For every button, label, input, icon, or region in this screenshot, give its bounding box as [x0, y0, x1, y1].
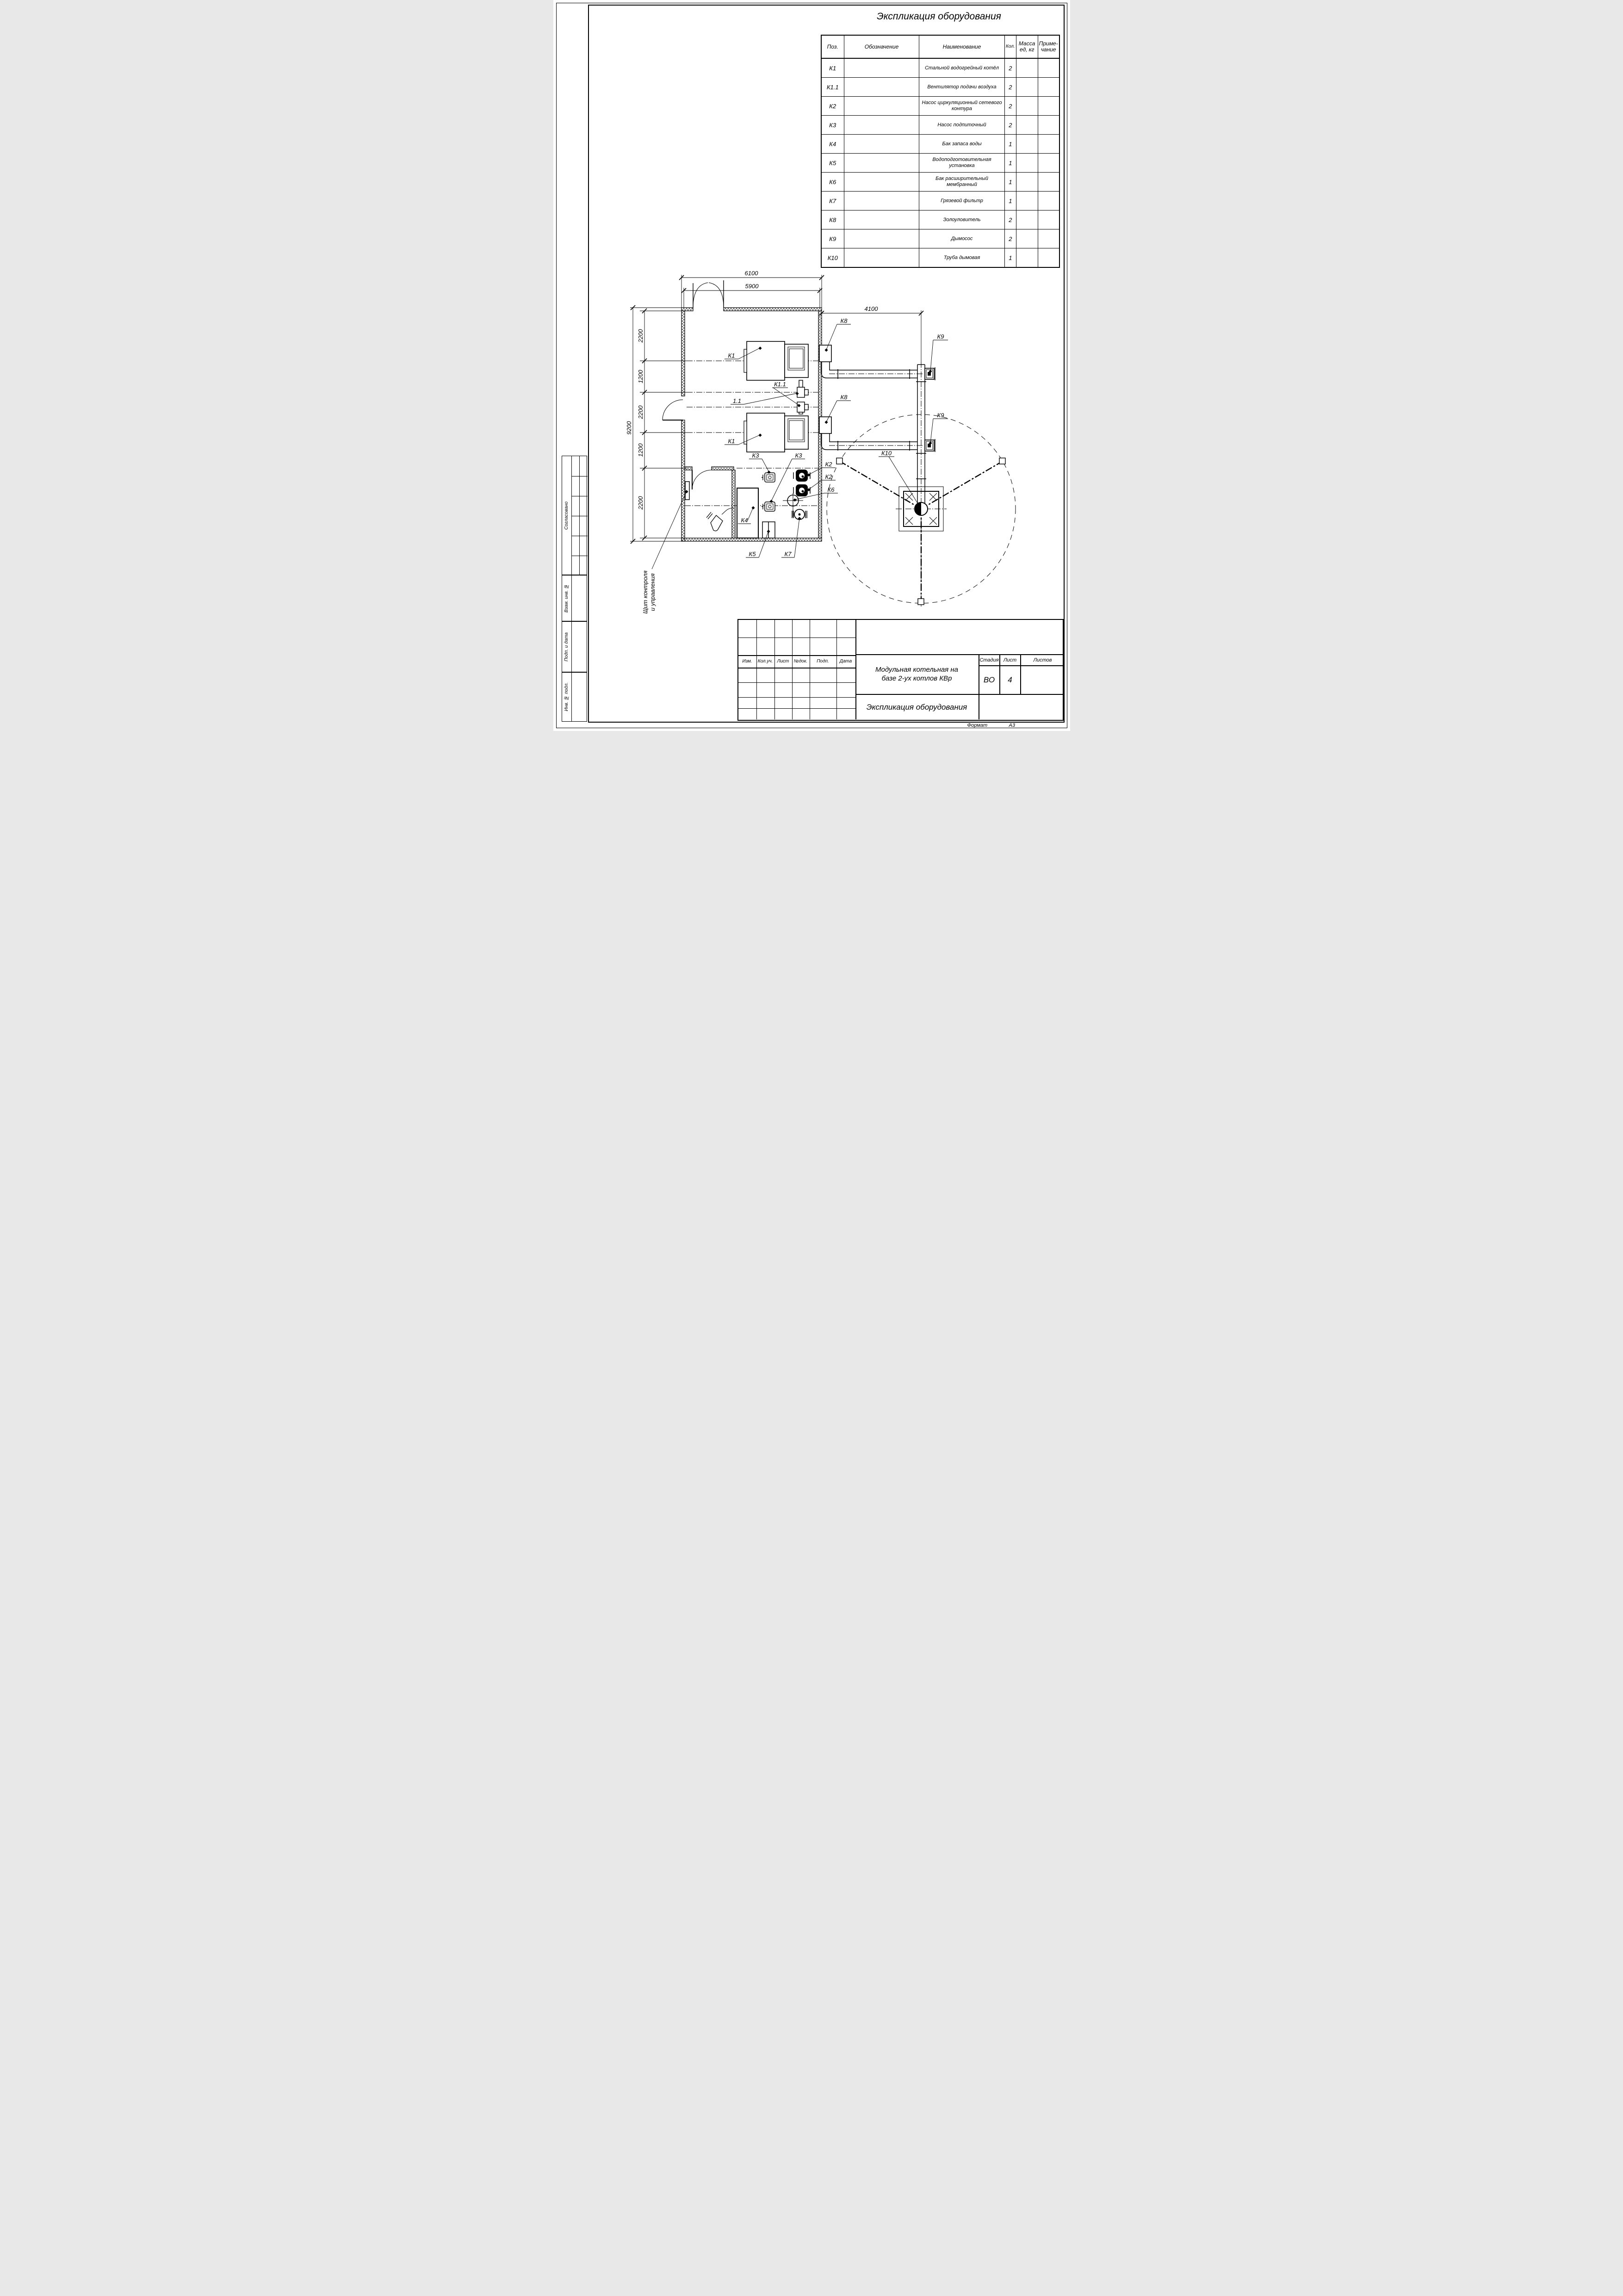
dim-6100-text: 6100 [744, 270, 758, 277]
sheet-label: Лист [1000, 655, 1020, 665]
feed-pump-2 [762, 502, 775, 511]
svg-text:Щит контроля: Щит контроля [642, 570, 649, 613]
feed-pump-1 [762, 473, 775, 482]
col-pos: Поз. [821, 35, 844, 58]
table-row: К8Золоуловитель2 [821, 210, 1059, 229]
rev-col-koluch: Кол.уч. [756, 655, 774, 668]
format-value: А3 [1009, 723, 1015, 728]
rev-col-data: Дата [836, 655, 855, 668]
table-row: К7Грязевой фильтр1 [821, 192, 1059, 210]
label-ash-2: К8 [840, 394, 848, 401]
smoke-exhauster-2 [925, 439, 935, 452]
water-treatment-unit [762, 522, 775, 538]
dim-chain-1: 1200 [637, 370, 644, 384]
rev-col-dok: №док. [792, 655, 810, 668]
stamp-inv-podl: Инв. № подл. [562, 672, 587, 722]
label-boiler-1: К1 [728, 352, 735, 359]
flue-duct-1 [821, 362, 917, 379]
network-pump-1 [793, 470, 810, 482]
label-expansion-tank: К6 [827, 486, 835, 493]
dim-4100-text: 4100 [864, 305, 878, 312]
table-row: К1Стальной водогрейный котёл2 [821, 58, 1059, 78]
sheet-value: 4 [1000, 666, 1020, 694]
table-row: К2Насос циркуляционный сетевого контура2 [821, 97, 1059, 116]
entrance-door [693, 280, 724, 308]
label-exhauster-1: К9 [937, 333, 944, 340]
label-water-tank: К4 [741, 517, 748, 524]
table-row: К9Дымосос2 [821, 229, 1059, 248]
col-qty: Кол. [1005, 35, 1016, 58]
dim-9200-text: 9200 [626, 421, 632, 435]
plan-drawing: 6100 5900 4100 [588, 268, 1065, 625]
dim-9200: 9200 [626, 305, 683, 544]
dim-chain-left: 2200 1200 2200 1200 2200 [637, 309, 687, 540]
col-note: Приме-чание [1038, 35, 1059, 58]
label-feed-pump-1: К3 [752, 452, 759, 459]
room-door [692, 470, 712, 489]
stamp-vzam-inv: Взам. инв. № [562, 575, 587, 621]
dim-4100: 4100 [819, 305, 923, 365]
centerlines [685, 361, 947, 606]
flue-duct-2 [821, 433, 917, 451]
table-row: К6Бак расширительный мембранный1 [821, 173, 1059, 192]
svg-text:и управления: и управления [649, 573, 656, 611]
dim-chain-3: 1200 [637, 443, 644, 457]
stage-label: Стадия [979, 655, 999, 665]
label-fan-2: К1.1 [774, 381, 786, 388]
table-row: К1.1Вентилятор подачи воздуха2 [821, 78, 1059, 97]
stamp-vzam-inv-label: Взам. инв. № [562, 576, 572, 621]
dim-5900-text: 5900 [745, 283, 759, 290]
table-row: К3Насос подпиточный2 [821, 116, 1059, 135]
floor-drain [706, 508, 734, 531]
sheets-value [1021, 666, 1065, 694]
stamp-podp-data: Подп. и дата [562, 621, 587, 672]
label-fan-1: 1.1 [732, 397, 741, 404]
dim-chain-0: 2200 [637, 329, 644, 343]
stamp-inv-podl-label: Инв. № подл. [562, 673, 572, 721]
label-network-pump-1: К2 [825, 461, 832, 468]
boiler-1 [744, 341, 808, 380]
rev-col-izm: Изм. [738, 655, 756, 668]
label-filter: К7 [784, 551, 792, 557]
label-network-pump-2: К2 [825, 473, 832, 480]
table-row: К10Труба дымовая1 [821, 248, 1059, 268]
project-title: Модульная котельная на базе 2-ух котлов … [855, 655, 979, 694]
boiler-2 [744, 413, 808, 452]
dim-5900: 5900 [681, 283, 822, 308]
label-chimney: К10 [881, 450, 892, 457]
label-water-treatment: К5 [749, 551, 756, 557]
ash-collector-1 [819, 345, 831, 362]
smoke-exhauster-1 [925, 367, 935, 380]
equipment-table-header: Поз. Обозначение Наименование Кол. Масса… [821, 35, 1059, 58]
rev-col-list: Лист [774, 655, 792, 668]
drawing-sheet: Экспликация оборудования Поз. Обозначени… [553, 0, 1070, 731]
organization-cell [979, 695, 1065, 719]
label-feed-pump-2: К3 [795, 452, 802, 459]
label-boiler-2: К1 [728, 438, 735, 445]
title-block: Изм. Кол.уч. Лист №док. Подп. Дата Модул… [737, 619, 1064, 721]
rev-col-podp: Подп. [810, 655, 836, 668]
sheet-title: Экспликация оборудования [855, 695, 979, 719]
water-tank [737, 488, 758, 538]
col-name: Наименование [919, 35, 1005, 58]
stamp-podp-data-label: Подп. и дата [562, 622, 572, 672]
stamp-soglasovano-label: Согласовано [562, 456, 572, 575]
label-exhauster-2: К9 [937, 412, 944, 419]
ash-collector-2 [819, 417, 831, 433]
dim-chain-4: 2200 [637, 496, 644, 510]
control-panel-annotation: Щит контроля и управления [642, 570, 656, 613]
stage-value: ВО [979, 666, 999, 694]
dim-chain-2: 2200 [637, 405, 644, 420]
equipment-table: Поз. Обозначение Наименование Кол. Масса… [821, 35, 1060, 268]
chimney [915, 502, 928, 515]
equipment-table-title: Экспликация оборудования [821, 11, 1058, 22]
label-ash-1: К8 [840, 317, 848, 324]
control-panel [685, 482, 689, 500]
sheets-label: Листов [1021, 655, 1065, 665]
table-row: К4Бак запаса воды1 [821, 135, 1059, 154]
air-fan-1 [797, 380, 808, 397]
table-row: К5Водоподготовительная установка1 [821, 154, 1059, 173]
side-door [663, 400, 683, 420]
stamp-soglasovano: Согласовано [562, 456, 587, 575]
col-mass: Массаед, кг [1016, 35, 1038, 58]
network-pump-2 [793, 484, 810, 496]
air-fan-2 [797, 402, 808, 414]
format-label: Формат [967, 723, 988, 728]
col-designation: Обозначение [844, 35, 919, 58]
